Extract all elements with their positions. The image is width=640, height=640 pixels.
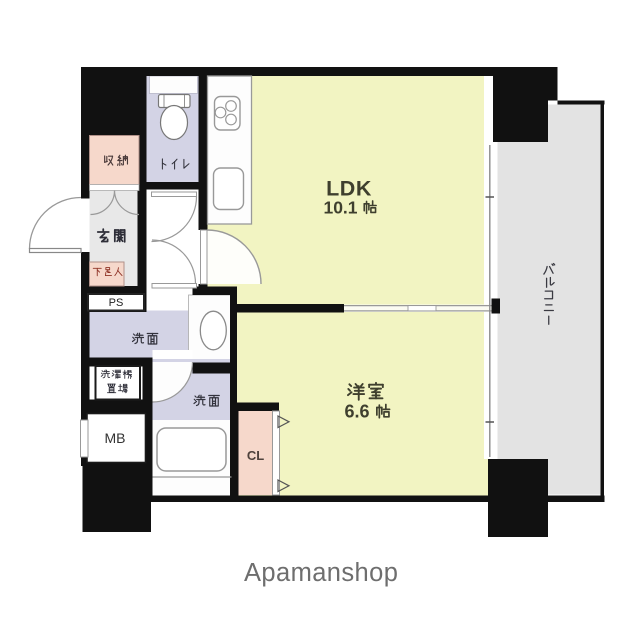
svg-text:6.6: 6.6	[344, 402, 369, 422]
svg-text:CL: CL	[247, 448, 264, 463]
svg-text:10.1: 10.1	[323, 198, 357, 218]
svg-text:Apamanshop: Apamanshop	[244, 559, 398, 587]
svg-text:PS: PS	[109, 297, 124, 309]
svg-text:MB: MB	[105, 430, 126, 446]
